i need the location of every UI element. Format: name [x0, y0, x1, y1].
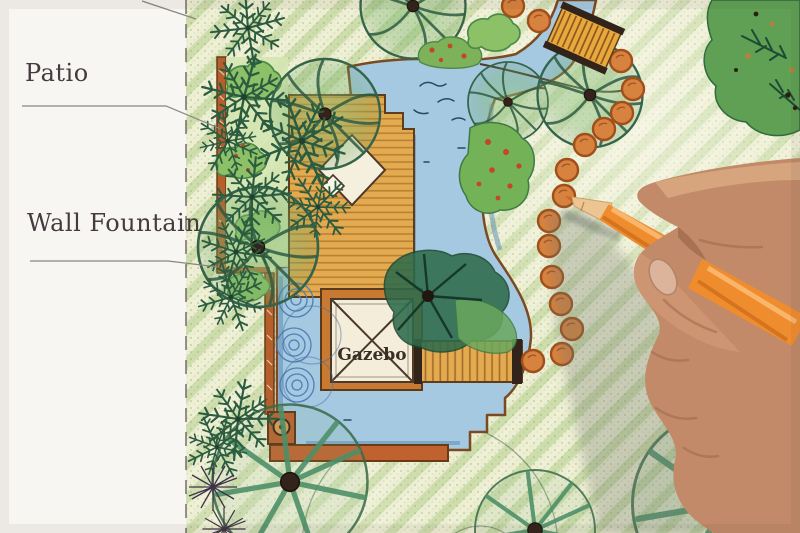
- patio-label: Patio: [25, 59, 89, 87]
- plan-drawing: Gazebo: [0, 0, 800, 533]
- wall-fountain-label: Wall Fountain: [27, 209, 201, 237]
- garden-plan-photo: Gazebo: [0, 0, 800, 533]
- gazebo-label: Gazebo: [337, 345, 406, 365]
